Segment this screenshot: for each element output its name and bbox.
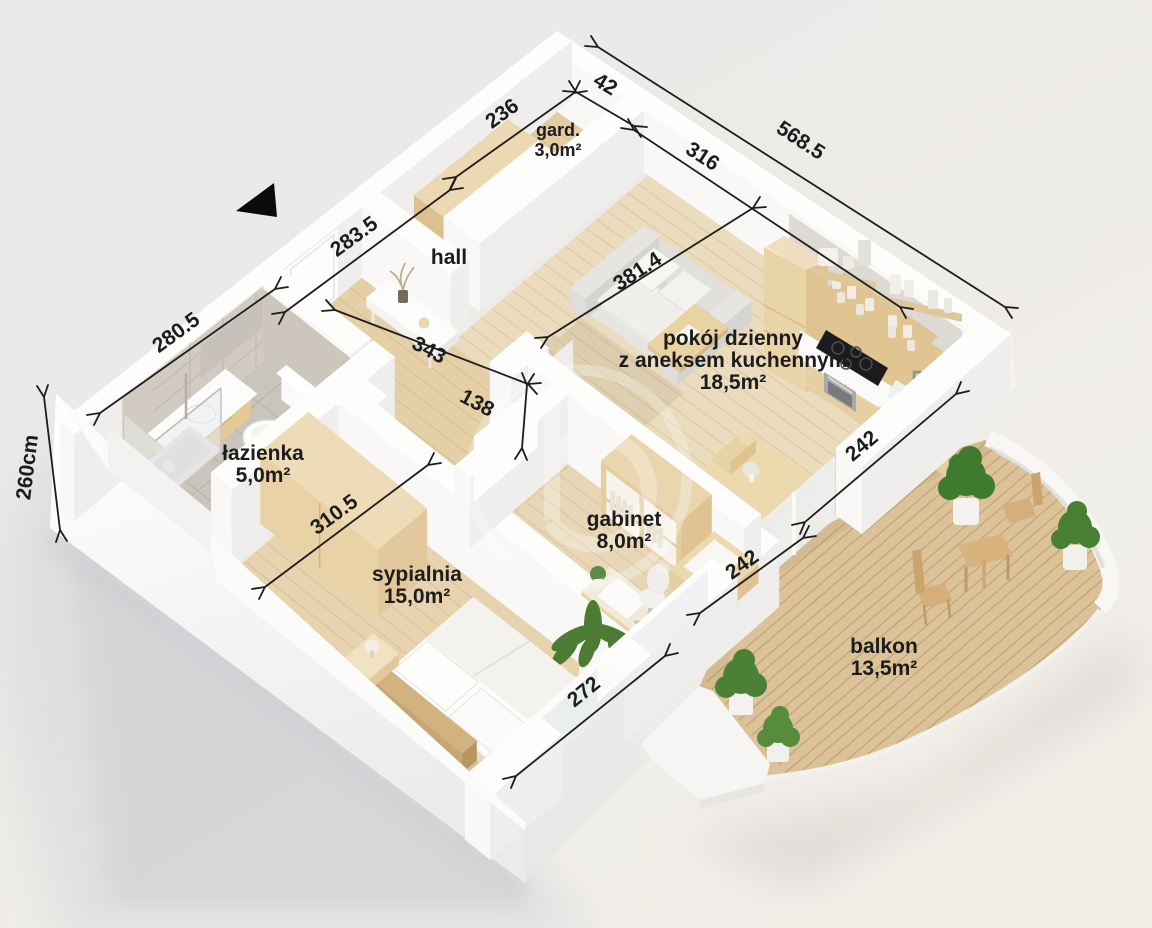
svg-text:gabinet: gabinet — [587, 508, 662, 531]
svg-text:5,0m²: 5,0m² — [236, 464, 291, 487]
svg-text:8,0m²: 8,0m² — [597, 530, 652, 553]
svg-text:sypialnia: sypialnia — [372, 563, 462, 586]
svg-text:łazienka: łazienka — [222, 442, 304, 465]
svg-text:balkon: balkon — [850, 635, 918, 658]
svg-text:3,0m²: 3,0m² — [534, 140, 581, 160]
svg-text:gard.: gard. — [536, 120, 580, 140]
svg-text:18,5m²: 18,5m² — [700, 371, 767, 394]
svg-text:pokój dzienny: pokój dzienny — [663, 327, 803, 350]
svg-text:z aneksem kuchennym: z aneksem kuchennym — [619, 349, 848, 372]
svg-text:hall: hall — [431, 246, 467, 269]
svg-text:13,5m²: 13,5m² — [851, 657, 918, 680]
svg-text:15,0m²: 15,0m² — [384, 585, 451, 608]
